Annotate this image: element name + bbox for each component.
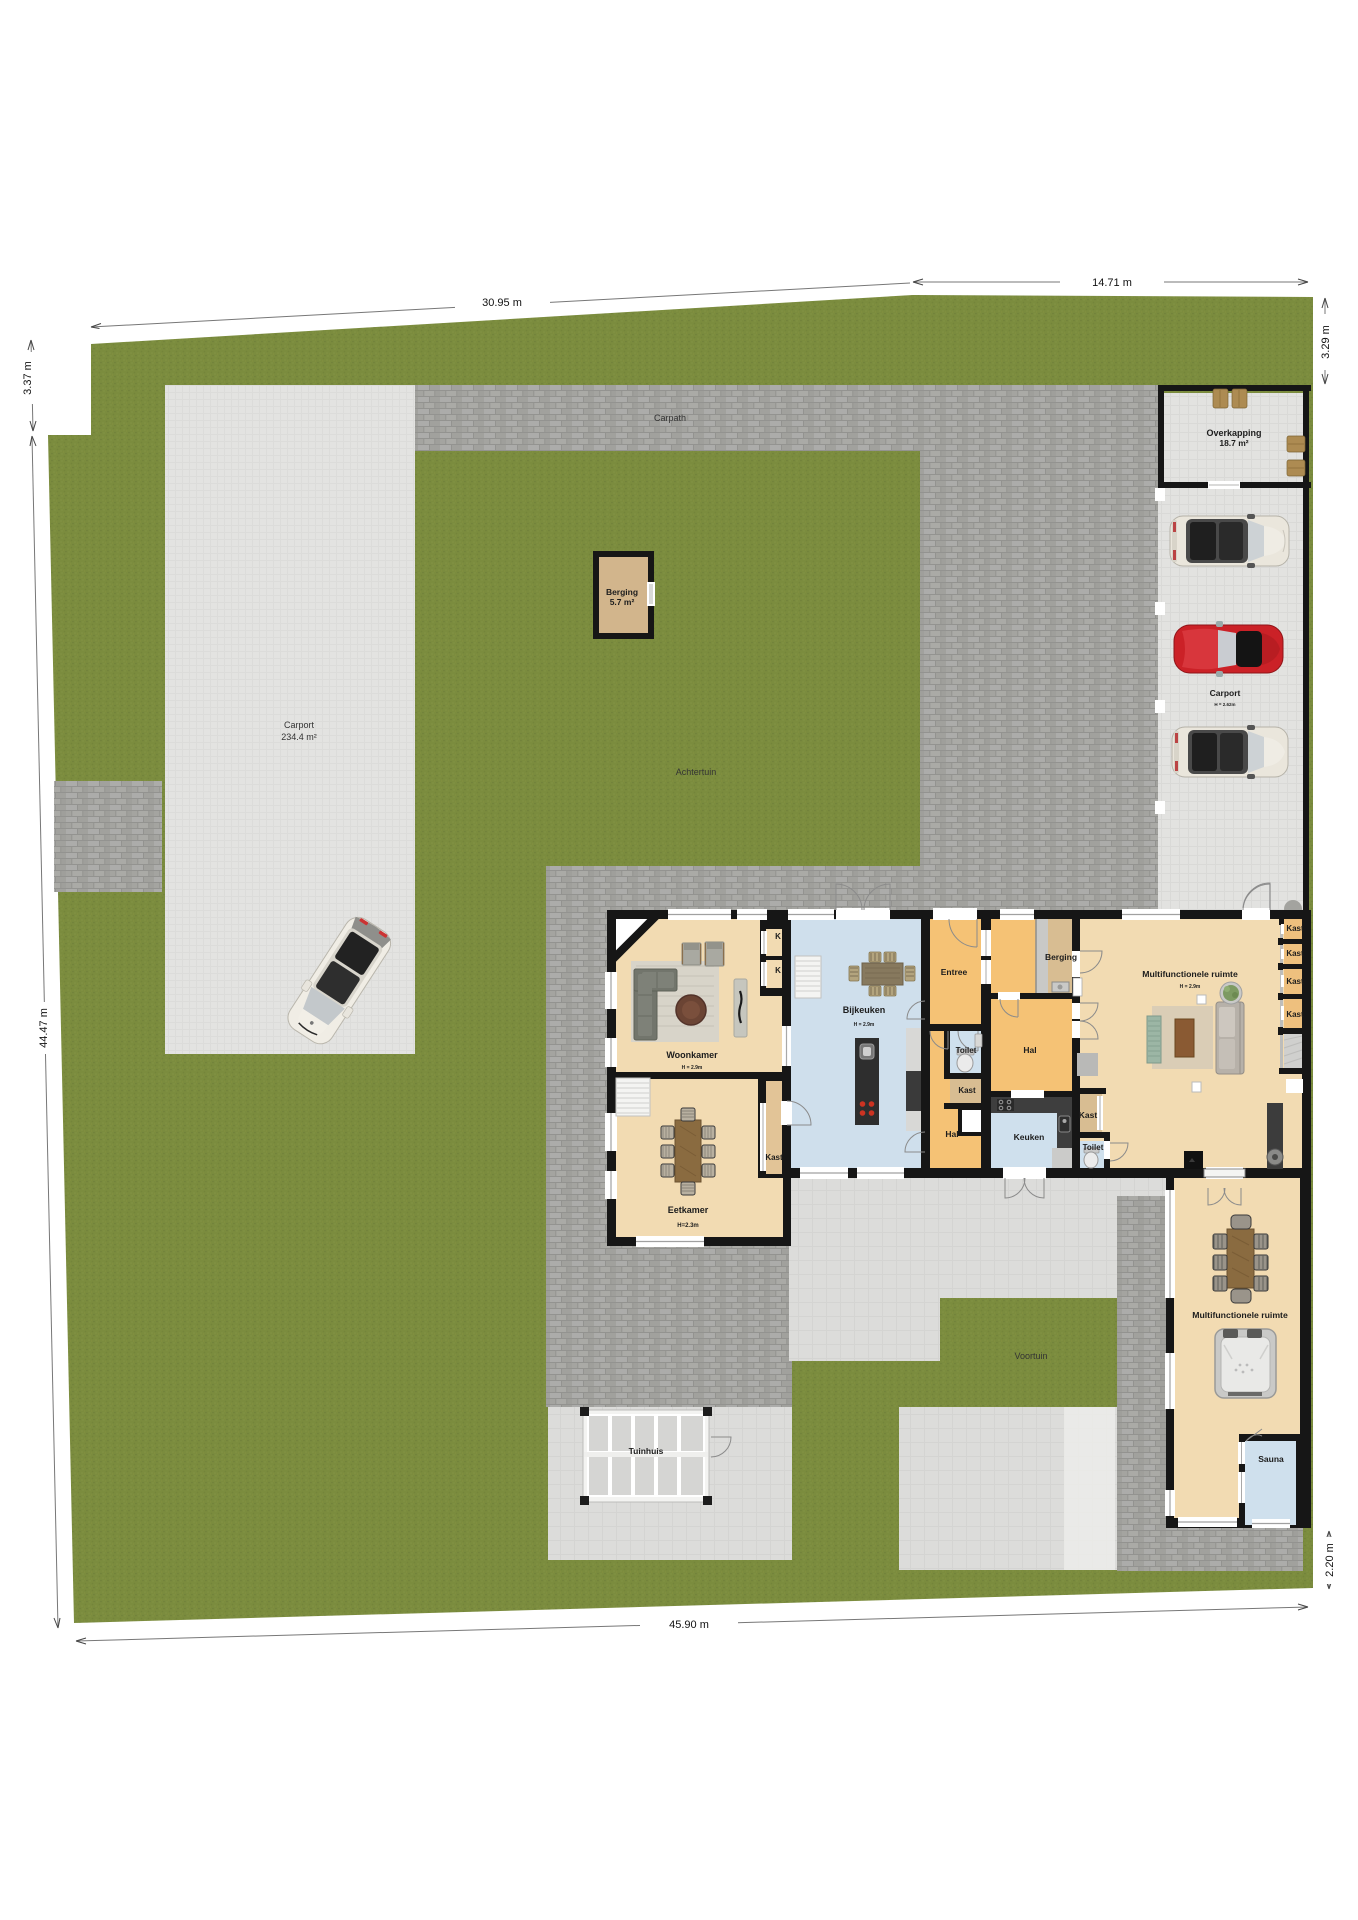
svg-text:Hal: Hal [945, 1129, 958, 1139]
svg-text:Carport: Carport [284, 720, 315, 730]
svg-text:Toilet: Toilet [1083, 1143, 1104, 1152]
svg-text:Achtertuin: Achtertuin [676, 767, 717, 777]
svg-text:Multifunctionele ruimte: Multifunctionele ruimte [1142, 969, 1238, 979]
svg-text:14.71 m: 14.71 m [1092, 277, 1132, 289]
svg-text:3.29 m: 3.29 m [1320, 325, 1332, 359]
svg-text:Voortuin: Voortuin [1014, 1351, 1047, 1361]
svg-text:Kast: Kast [958, 1086, 976, 1095]
svg-text:H = 2.9m: H = 2.9m [854, 1022, 875, 1028]
svg-text:Multifunctionele ruimte: Multifunctionele ruimte [1192, 1310, 1288, 1320]
svg-text:Kast: Kast [1286, 977, 1304, 986]
svg-text:Hal: Hal [1023, 1045, 1036, 1055]
svg-text:234.4 m²: 234.4 m² [281, 732, 317, 742]
svg-text:Kast: Kast [1079, 1110, 1098, 1120]
svg-text:Kast: Kast [1286, 1010, 1304, 1019]
svg-text:3.37 m: 3.37 m [22, 361, 34, 395]
svg-text:Bijkeuken: Bijkeuken [843, 1005, 886, 1015]
svg-text:18.7 m²: 18.7 m² [1219, 438, 1248, 448]
svg-text:H = 2.62m: H = 2.62m [1214, 702, 1235, 707]
svg-text:Keuken: Keuken [1014, 1132, 1045, 1142]
svg-text:5.7 m²: 5.7 m² [610, 597, 635, 607]
svg-text:Overkapping: Overkapping [1206, 428, 1261, 438]
svg-text:K: K [775, 966, 781, 975]
svg-text:Woonkamer: Woonkamer [666, 1050, 718, 1060]
svg-text:30.95 m: 30.95 m [482, 297, 522, 309]
svg-text:44.47 m: 44.47 m [38, 1008, 50, 1048]
svg-text:Kast: Kast [1286, 924, 1304, 933]
svg-text:Kast: Kast [1286, 949, 1304, 958]
svg-text:Eetkamer: Eetkamer [668, 1205, 709, 1215]
svg-text:45.90 m: 45.90 m [669, 1619, 709, 1631]
svg-text:Carport: Carport [1210, 688, 1241, 698]
svg-text:Berging: Berging [606, 587, 638, 597]
svg-text:Tuinhuis: Tuinhuis [629, 1446, 664, 1456]
svg-text:Toilet: Toilet [956, 1046, 977, 1055]
svg-text:Entree: Entree [941, 967, 968, 977]
svg-text:Berging: Berging [1045, 952, 1077, 962]
svg-text:H=2.3m: H=2.3m [677, 1223, 699, 1229]
svg-text:Carpath: Carpath [654, 413, 686, 423]
svg-text:H = 2.9m: H = 2.9m [1180, 984, 1201, 990]
svg-text:Sauna: Sauna [1258, 1454, 1284, 1464]
svg-text:Kast: Kast [765, 1153, 783, 1162]
svg-text:K: K [775, 932, 781, 941]
svg-text:H = 2.9m: H = 2.9m [682, 1065, 703, 1071]
svg-text:2.20 m: 2.20 m [1324, 1543, 1336, 1577]
